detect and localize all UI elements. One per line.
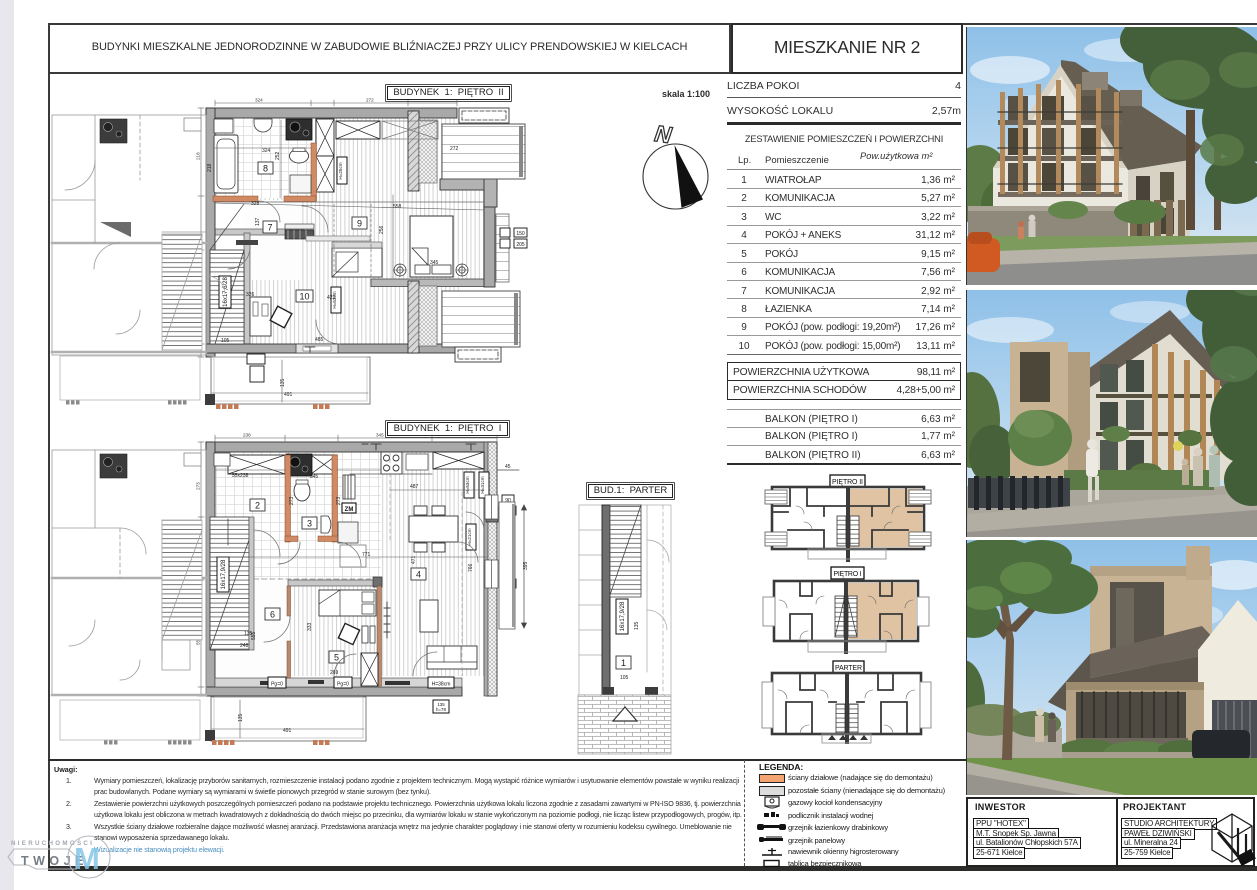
svg-text:9: 9	[357, 219, 362, 229]
svg-text:326: 326	[246, 292, 255, 298]
svg-text:H=38cm: H=38cm	[432, 682, 451, 688]
svg-text:Pg=0: Pg=0	[337, 682, 349, 688]
svg-text:2: 2	[255, 501, 260, 511]
svg-text:M: M	[74, 841, 100, 876]
svg-text:8: 8	[263, 164, 268, 174]
svg-text:345: 345	[310, 474, 319, 480]
svg-text:135: 135	[238, 713, 244, 722]
svg-text:6: 6	[270, 610, 275, 620]
svg-text:Pg=0: Pg=0	[271, 682, 283, 688]
svg-text:7: 7	[267, 223, 272, 233]
svg-text:252: 252	[275, 151, 281, 160]
svg-text:238: 238	[243, 433, 251, 438]
svg-text:16x17,6/28: 16x17,6/28	[223, 276, 229, 306]
svg-text:5: 5	[334, 653, 339, 663]
svg-text:272: 272	[450, 146, 459, 152]
svg-text:1: 1	[621, 658, 626, 668]
svg-text:150: 150	[516, 231, 525, 237]
svg-text:269: 269	[330, 670, 339, 676]
svg-text:422: 422	[327, 295, 336, 301]
svg-text:PIĘTRO I: PIĘTRO I	[834, 571, 862, 578]
svg-text:324: 324	[262, 148, 271, 154]
svg-text:487: 487	[410, 484, 419, 490]
svg-text:H=53cm: H=53cm	[465, 476, 470, 493]
svg-text:345: 345	[430, 260, 439, 266]
svg-text:272: 272	[366, 98, 374, 103]
svg-text:135: 135	[634, 621, 640, 630]
svg-text:45: 45	[505, 464, 511, 470]
svg-text:471: 471	[411, 555, 417, 564]
svg-text:4: 4	[416, 570, 421, 580]
svg-text:137: 137	[255, 217, 261, 226]
svg-text:135: 135	[280, 378, 286, 387]
svg-text:324: 324	[255, 98, 263, 103]
svg-text:H=31cm: H=31cm	[480, 476, 485, 493]
svg-text:345: 345	[376, 433, 384, 438]
svg-text:218: 218	[207, 163, 213, 172]
svg-text:H=21cm: H=21cm	[467, 528, 472, 545]
svg-text:16x17,9/28: 16x17,9/28	[620, 601, 626, 631]
svg-text:PIĘTRO II: PIĘTRO II	[832, 479, 863, 486]
svg-text:ZM: ZM	[345, 507, 354, 513]
svg-text:273: 273	[289, 496, 295, 505]
svg-text:PARTER: PARTER	[835, 665, 862, 672]
svg-text:3: 3	[307, 519, 312, 529]
svg-text:256: 256	[379, 225, 385, 234]
svg-text:218: 218	[196, 152, 201, 160]
svg-text:333: 333	[307, 622, 313, 631]
svg-text:766: 766	[468, 563, 474, 572]
svg-text:395: 395	[523, 561, 529, 570]
svg-text:135: 135	[244, 631, 253, 637]
svg-text:205: 205	[516, 242, 525, 248]
svg-text:105: 105	[620, 675, 629, 681]
svg-text:491: 491	[283, 728, 292, 734]
svg-text:16x17,9/28: 16x17,9/28	[221, 559, 227, 589]
svg-text:273: 273	[196, 482, 201, 490]
svg-text:105: 105	[221, 338, 230, 344]
svg-text:10: 10	[299, 292, 309, 302]
svg-text:273: 273	[336, 496, 342, 505]
svg-text:558: 558	[393, 204, 402, 210]
svg-text:h=78: h=78	[436, 707, 446, 712]
svg-text:H=25cm: H=25cm	[338, 162, 343, 179]
svg-text:248: 248	[240, 643, 249, 649]
svg-text:55x238: 55x238	[232, 473, 249, 479]
svg-text:485: 485	[315, 337, 324, 343]
